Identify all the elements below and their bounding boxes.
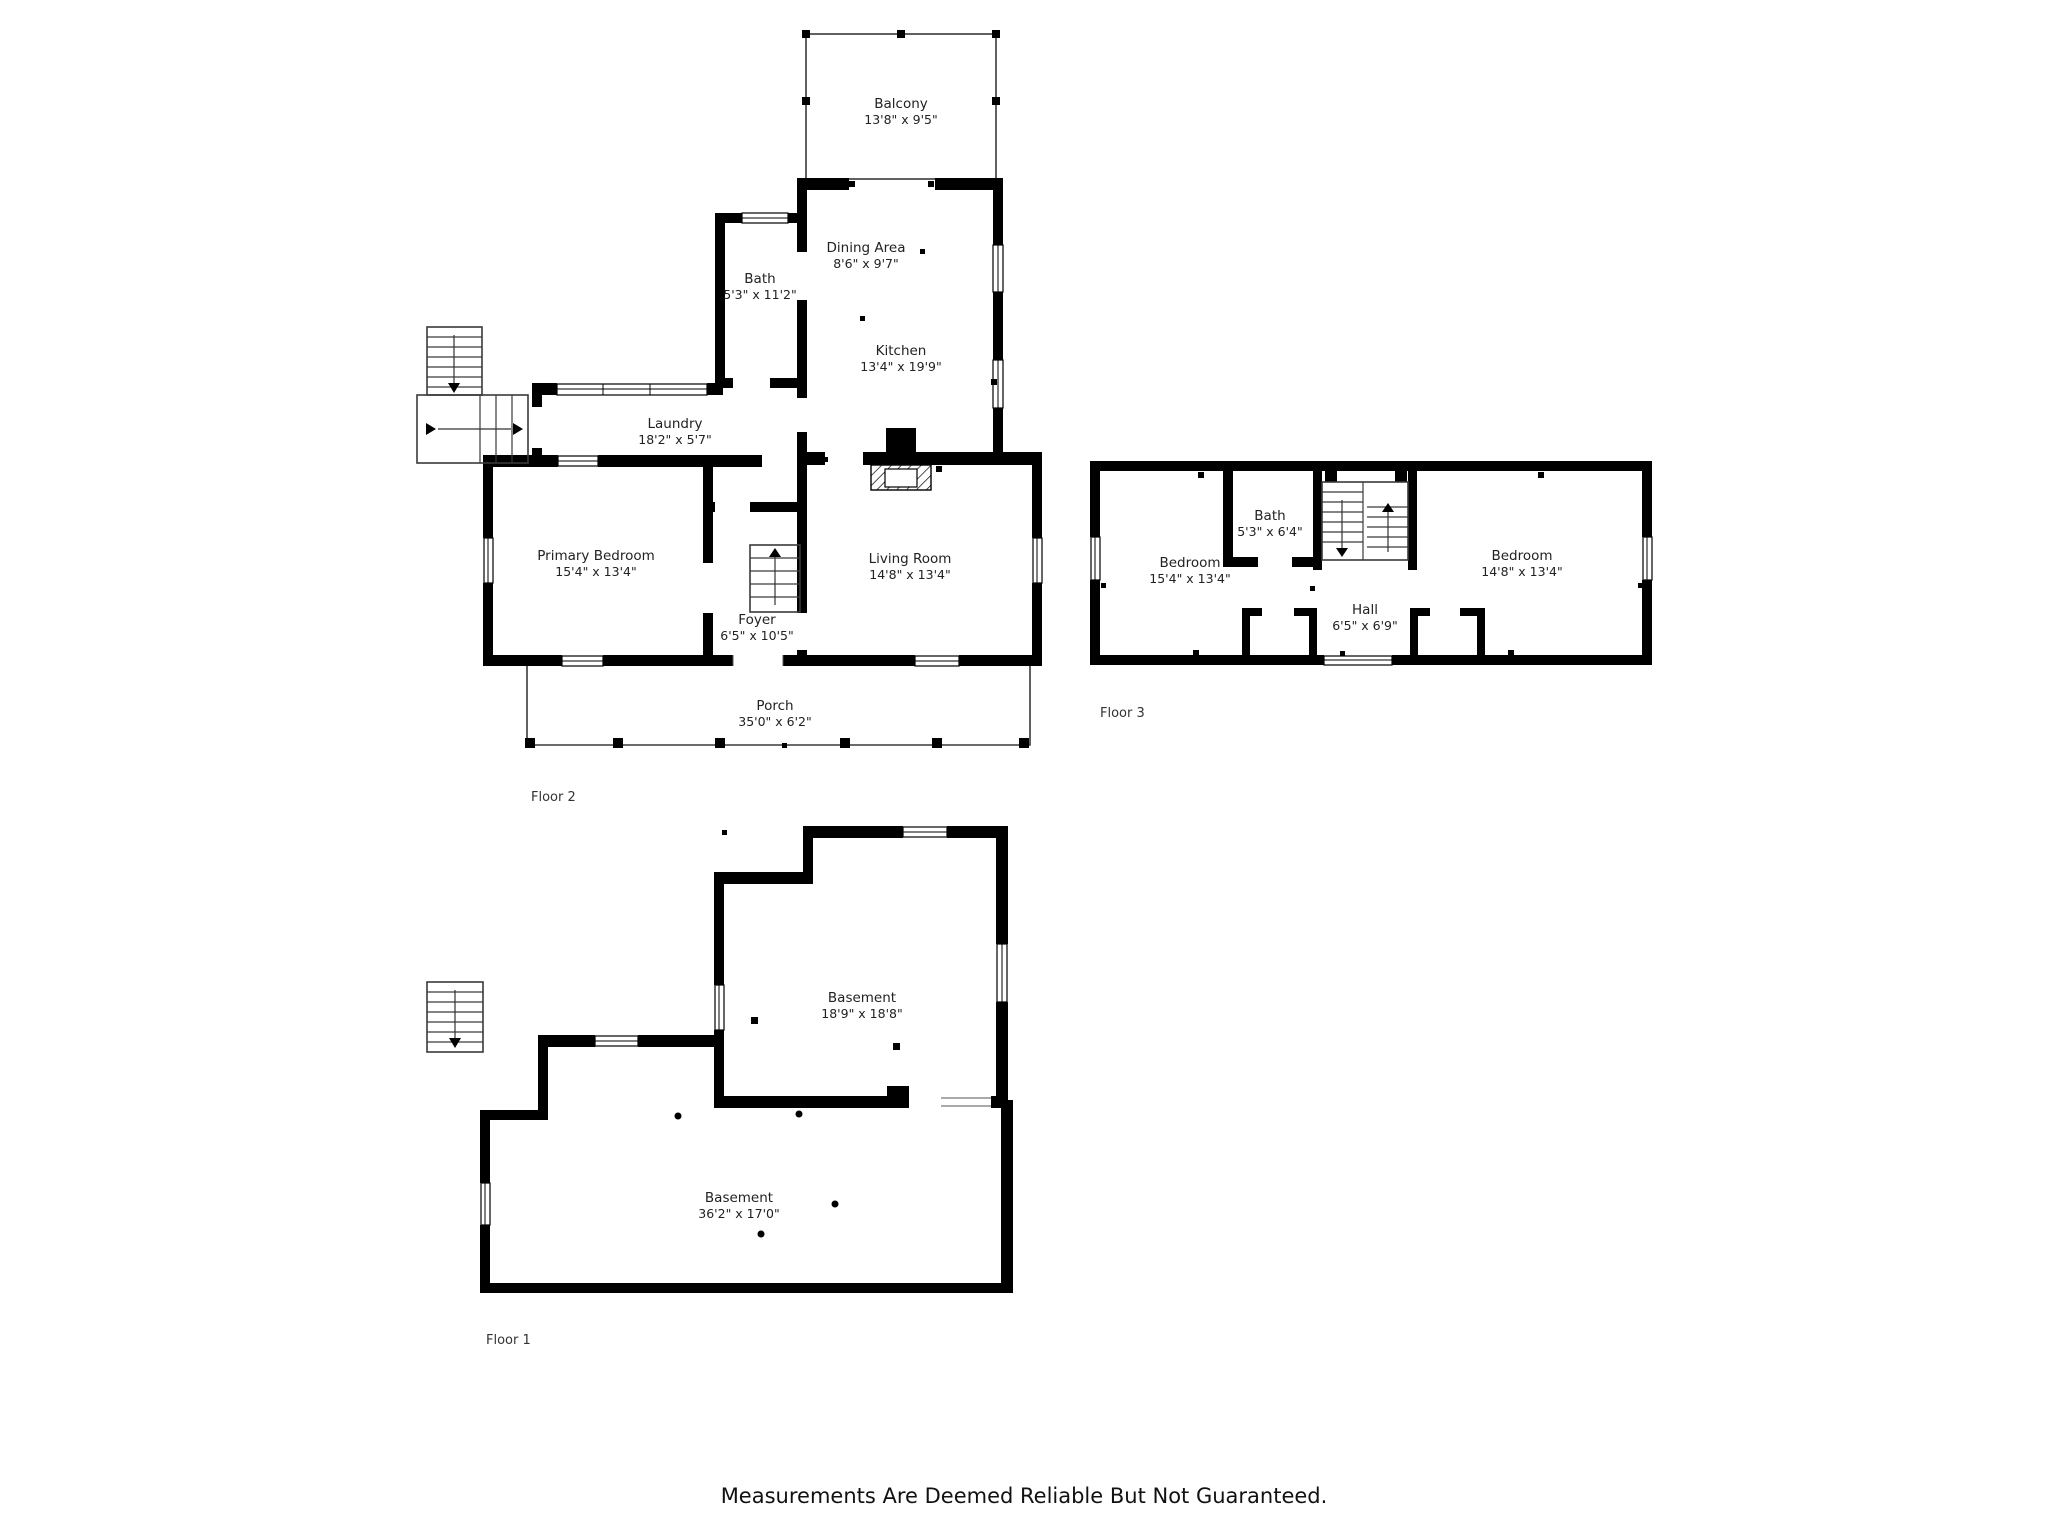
room-label-dining: Dining Area [827, 240, 906, 256]
room-dims-basement-upper: 18'9" x 18'8" [821, 1006, 902, 1021]
room-dims-bedroom-left: 15'4" x 13'4" [1149, 571, 1230, 586]
room-dims-basement-lower: 36'2" x 17'0" [698, 1206, 779, 1221]
window [1324, 656, 1392, 665]
room-dims-porch: 35'0" x 6'2" [738, 714, 811, 729]
room-label-foyer: Foyer [738, 612, 776, 628]
room-dims-laundry: 18'2" x 5'7" [638, 432, 711, 447]
room-dims-hall: 6'5" x 6'9" [1332, 618, 1398, 633]
window [903, 827, 947, 837]
window [558, 456, 598, 466]
floor-1-label: Floor 1 [486, 1333, 531, 1348]
room-label-primary-bedroom: Primary Bedroom [537, 548, 655, 564]
room-label-bath2: Bath [744, 271, 775, 287]
window [481, 1183, 490, 1225]
floor-plan-page: Balcony 13'8" x 9'5" Dining Area 8'6" x … [0, 0, 2048, 1536]
floor-3-plan: Bedroom 15'4" x 13'4" Bath 5'3" x 6'4" H… [1090, 461, 1652, 721]
room-dims-bedroom-right: 14'8" x 13'4" [1481, 564, 1562, 579]
room-dims-bath3: 5'3" x 6'4" [1237, 524, 1303, 539]
window [595, 1036, 638, 1046]
room-dims-dining: 8'6" x 9'7" [833, 256, 899, 271]
room-label-balcony: Balcony [874, 96, 928, 112]
window [557, 384, 707, 395]
room-label-hall: Hall [1352, 602, 1378, 618]
room-label-kitchen: Kitchen [876, 343, 927, 359]
floor-3-staircase [1322, 482, 1408, 560]
window [997, 944, 1007, 1002]
room-label-basement-lower: Basement [705, 1190, 773, 1206]
disclaimer-text: Measurements Are Deemed Reliable But Not… [721, 1484, 1328, 1508]
room-label-bedroom-left: Bedroom [1159, 555, 1220, 571]
window [1091, 537, 1100, 580]
room-label-bath3: Bath [1254, 508, 1285, 524]
floor-3-label: Floor 3 [1100, 706, 1145, 721]
window [915, 656, 959, 666]
floor-plan-drawing: Balcony 13'8" x 9'5" Dining Area 8'6" x … [0, 0, 2048, 1536]
floor-2-plan: Balcony 13'8" x 9'5" Dining Area 8'6" x … [417, 30, 1042, 805]
window [993, 245, 1003, 292]
room-label-laundry: Laundry [647, 416, 702, 432]
window [715, 985, 724, 1030]
room-label-living-room: Living Room [869, 551, 952, 567]
window [742, 213, 788, 223]
floor-1-walls [480, 826, 1013, 1293]
exterior-staircase [417, 327, 528, 463]
floor-1-plan: Basement 18'9" x 18'8" Basement 36'2" x … [427, 826, 1013, 1348]
room-dims-primary-bedroom: 15'4" x 13'4" [555, 564, 636, 579]
window [1033, 538, 1042, 583]
room-dims-foyer: 6'5" x 10'5" [720, 628, 793, 643]
foyer-staircase [750, 545, 800, 612]
window [1643, 537, 1652, 580]
room-label-bedroom-right: Bedroom [1491, 548, 1552, 564]
window [484, 538, 493, 583]
room-label-basement-upper: Basement [828, 990, 896, 1006]
floor-1-windows [481, 827, 1007, 1225]
room-dims-living-room: 14'8" x 13'4" [869, 567, 950, 582]
room-dims-bath2: 5'3" x 11'2" [723, 287, 796, 302]
bulkhead-staircase [427, 982, 483, 1052]
floor-2-walls [483, 178, 1042, 666]
window [562, 656, 603, 666]
floor-1-posts [626, 830, 1009, 1289]
room-label-porch: Porch [756, 698, 793, 714]
room-dims-kitchen: 13'4" x 19'9" [860, 359, 941, 374]
room-dims-balcony: 13'8" x 9'5" [864, 112, 937, 127]
floor-2-label: Floor 2 [531, 790, 576, 805]
